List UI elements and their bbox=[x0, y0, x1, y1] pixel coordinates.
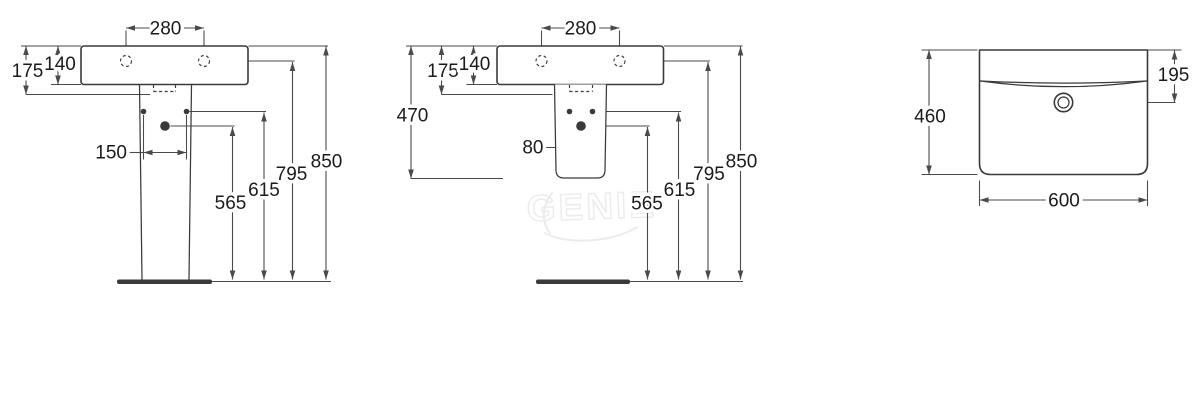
label-rim-height: 850 bbox=[311, 152, 343, 173]
view-front-full-pedestal: 280 175 140 150 565 615 795 850 bbox=[12, 19, 343, 285]
waste-outlet bbox=[160, 121, 170, 131]
label-tap-height: 795 bbox=[693, 164, 725, 185]
floor-line bbox=[117, 280, 212, 285]
technical-drawing: GENIE bbox=[0, 0, 1200, 406]
view-top: 460 195 600 bbox=[914, 50, 1189, 212]
label-depth: 460 bbox=[914, 107, 946, 128]
trap-cover-hidden-line bbox=[154, 85, 176, 92]
fixing-hole-right bbox=[590, 109, 596, 115]
pedestal bbox=[140, 85, 192, 280]
label-basin-depth: 140 bbox=[44, 54, 76, 75]
basin-body bbox=[81, 46, 248, 85]
label-fixing-height: 615 bbox=[664, 180, 696, 201]
label-width: 600 bbox=[1048, 191, 1080, 212]
label-front-edge-depth: 175 bbox=[427, 61, 459, 82]
label-basin-depth: 140 bbox=[459, 54, 491, 75]
label-tap-height: 795 bbox=[276, 164, 308, 185]
label-tap-spacing: 280 bbox=[150, 19, 182, 40]
semi-pedestal bbox=[555, 85, 607, 179]
floor-line bbox=[536, 280, 630, 285]
waste-outlet bbox=[576, 121, 586, 131]
label-waste-height: 565 bbox=[215, 193, 247, 214]
watermark-swoosh bbox=[545, 227, 637, 241]
label-tap-spacing: 280 bbox=[565, 19, 597, 40]
fixing-hole-left bbox=[567, 109, 573, 115]
label-fixing-spacing: 150 bbox=[95, 143, 127, 164]
view-front-semi-pedestal: 280 175 140 470 80 565 615 795 850 bbox=[397, 19, 758, 285]
fixing-hole-right bbox=[184, 109, 190, 115]
label-rim-height: 850 bbox=[726, 152, 758, 173]
basin-body bbox=[497, 46, 664, 85]
label-semi-pedestal-drop: 470 bbox=[397, 106, 429, 127]
label-waste-height: 565 bbox=[631, 194, 663, 215]
fixing-hole-left bbox=[141, 109, 147, 115]
label-tap-offset: 195 bbox=[1158, 65, 1190, 86]
label-fixing-spacing: 80 bbox=[522, 138, 543, 159]
label-front-edge-depth: 175 bbox=[12, 61, 44, 82]
